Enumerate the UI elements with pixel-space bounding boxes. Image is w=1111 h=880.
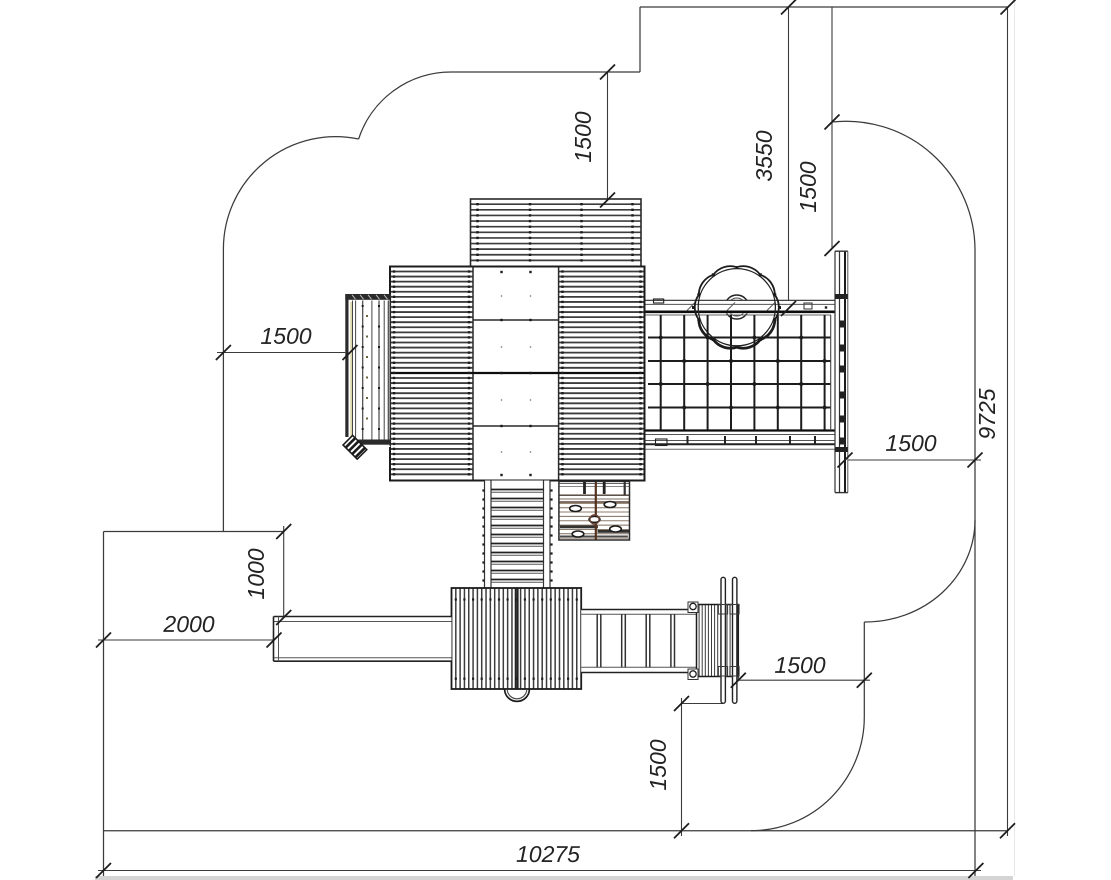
svg-text:2000: 2000 bbox=[162, 611, 214, 637]
svg-text:1500: 1500 bbox=[260, 323, 311, 349]
svg-text:1500: 1500 bbox=[570, 111, 596, 162]
svg-text:1500: 1500 bbox=[645, 739, 671, 790]
svg-text:1500: 1500 bbox=[885, 430, 936, 456]
svg-text:9725: 9725 bbox=[974, 388, 1000, 439]
svg-text:1500: 1500 bbox=[774, 652, 825, 678]
svg-text:1500: 1500 bbox=[795, 161, 821, 212]
svg-text:3550: 3550 bbox=[751, 130, 777, 181]
svg-text:10275: 10275 bbox=[516, 841, 580, 867]
svg-text:1000: 1000 bbox=[243, 548, 269, 599]
